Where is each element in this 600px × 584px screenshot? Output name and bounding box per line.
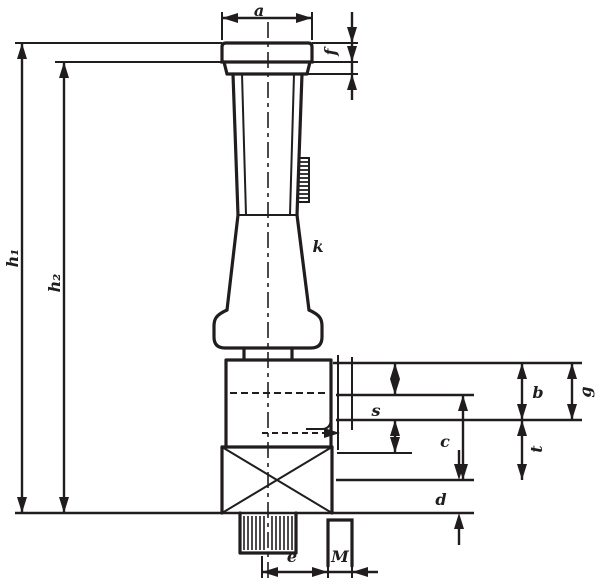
cap: [222, 43, 312, 62]
dim-label-s: s: [370, 401, 380, 420]
dim-g-arrow-bottom: [567, 404, 577, 420]
dim-label-f: f: [321, 45, 340, 56]
dim-s-arrow-bottom: [390, 379, 400, 395]
technical-drawing: a f h₁ h₂ k s c: [0, 0, 600, 584]
dim-small-34: [390, 420, 400, 453]
dim-e-arrow-right: [312, 567, 328, 577]
dim-g: g: [567, 363, 595, 420]
bore-leader: [262, 428, 340, 438]
dim-label-h2: h₂: [45, 274, 64, 293]
dim-label-c: c: [440, 432, 450, 451]
dim-h1-arrow-bottom: [17, 497, 27, 513]
dim-a-arrow-left: [222, 13, 238, 23]
dim-label-d: d: [435, 490, 446, 509]
dim-t: t: [517, 420, 546, 480]
dim-h1: h₁: [3, 43, 27, 513]
dim-c-arrow-top: [458, 395, 468, 411]
dim-label-k: k: [312, 237, 323, 256]
dim-label-t: t: [527, 445, 546, 453]
dim-c: c: [440, 395, 468, 480]
dim-h1-arrow-top: [17, 43, 27, 59]
cap-rib: [224, 62, 310, 74]
dim-a-arrow-right: [296, 13, 312, 23]
dim-label-M: M: [330, 547, 350, 566]
dim-f: f: [321, 12, 357, 100]
dim-f-arrow-3: [347, 74, 357, 90]
knurl-outline: [299, 158, 309, 202]
dim-a: a: [222, 1, 312, 40]
dim-s: s: [370, 363, 400, 420]
dim-small-arrow-top: [390, 420, 400, 436]
dim-d-arrow-bottom: [454, 513, 464, 529]
part-outline: [214, 22, 352, 578]
dim-h2-arrow-top: [59, 62, 69, 78]
dim-t-arrow-top: [517, 420, 527, 436]
dim-e-arrow-left: [262, 567, 278, 577]
dim-label-b: b: [532, 383, 543, 402]
lower-body: [222, 348, 332, 513]
dim-h2-arrow-bottom: [59, 497, 69, 513]
extension-lines: [15, 43, 582, 578]
dim-f-arrow-2: [347, 46, 357, 62]
dim-M-arrow-right: [352, 567, 368, 577]
dim-b: b: [517, 363, 544, 420]
dim-label-e: e: [287, 547, 297, 566]
square-section-diagonals: [222, 447, 332, 513]
knurl-serrations: [299, 158, 309, 202]
dim-b-arrow-bottom: [517, 404, 527, 420]
knurl-strip: [299, 158, 309, 202]
dim-b-arrow-top: [517, 363, 527, 379]
dim-d: d: [435, 450, 464, 545]
dim-label-a: a: [254, 1, 264, 20]
dim-label-h1: h₁: [3, 249, 22, 268]
dim-t-arrow-bottom: [517, 464, 527, 480]
dim-s-arrow-top: [390, 363, 400, 379]
dim-small-arrow-bottom: [390, 437, 400, 453]
dim-g-arrow-top: [567, 363, 577, 379]
dim-label-g: g: [576, 386, 595, 397]
dim-f-arrow-1: [347, 27, 357, 43]
drawing-canvas: a f h₁ h₂ k s c: [0, 0, 600, 584]
side-step-detail: [306, 418, 331, 429]
ext-right-verticals: [338, 355, 352, 450]
dim-h2: h₂: [45, 62, 69, 513]
